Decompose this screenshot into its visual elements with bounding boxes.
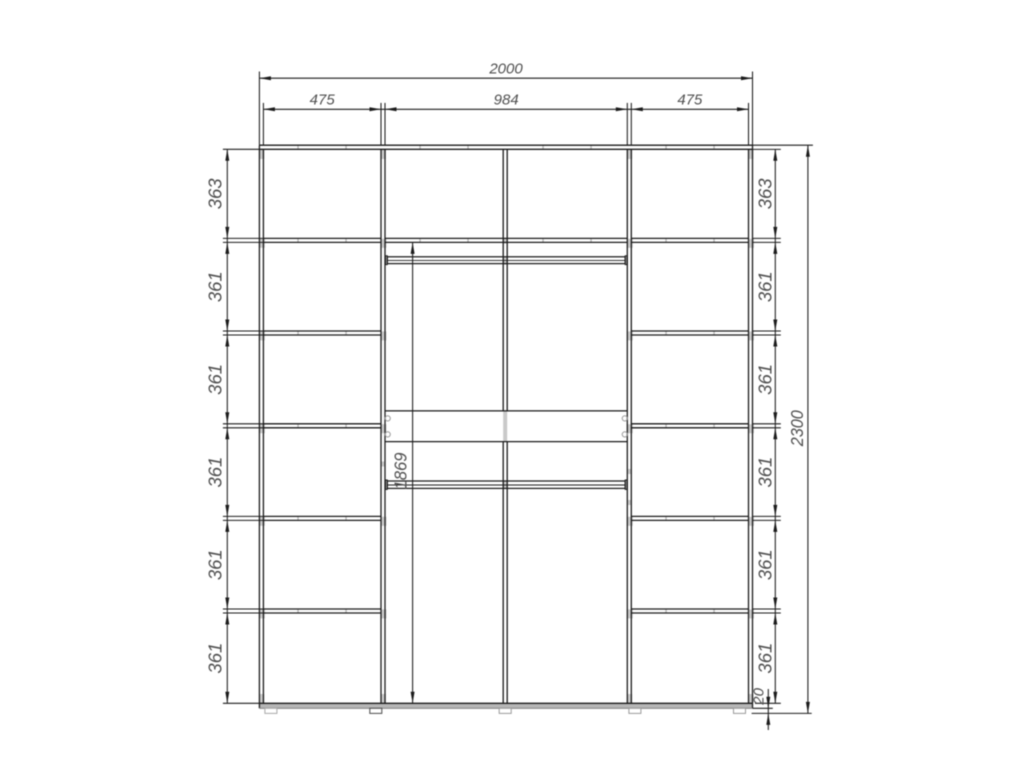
- svg-text:363: 363: [754, 178, 775, 210]
- svg-text:475: 475: [677, 91, 703, 108]
- svg-text:361: 361: [754, 271, 775, 302]
- svg-text:20: 20: [751, 687, 768, 705]
- svg-text:361: 361: [204, 457, 225, 488]
- svg-text:361: 361: [204, 549, 225, 580]
- svg-text:2300: 2300: [787, 410, 807, 447]
- svg-text:1869: 1869: [390, 452, 410, 489]
- svg-text:361: 361: [204, 643, 225, 674]
- svg-text:361: 361: [754, 549, 775, 580]
- svg-text:361: 361: [204, 271, 225, 302]
- svg-text:361: 361: [204, 364, 225, 395]
- svg-text:361: 361: [754, 457, 775, 488]
- svg-text:363: 363: [204, 178, 225, 210]
- svg-text:361: 361: [754, 643, 775, 674]
- svg-text:2000: 2000: [488, 60, 523, 77]
- svg-text:361: 361: [754, 364, 775, 395]
- svg-text:475: 475: [310, 91, 336, 108]
- svg-text:984: 984: [494, 91, 519, 108]
